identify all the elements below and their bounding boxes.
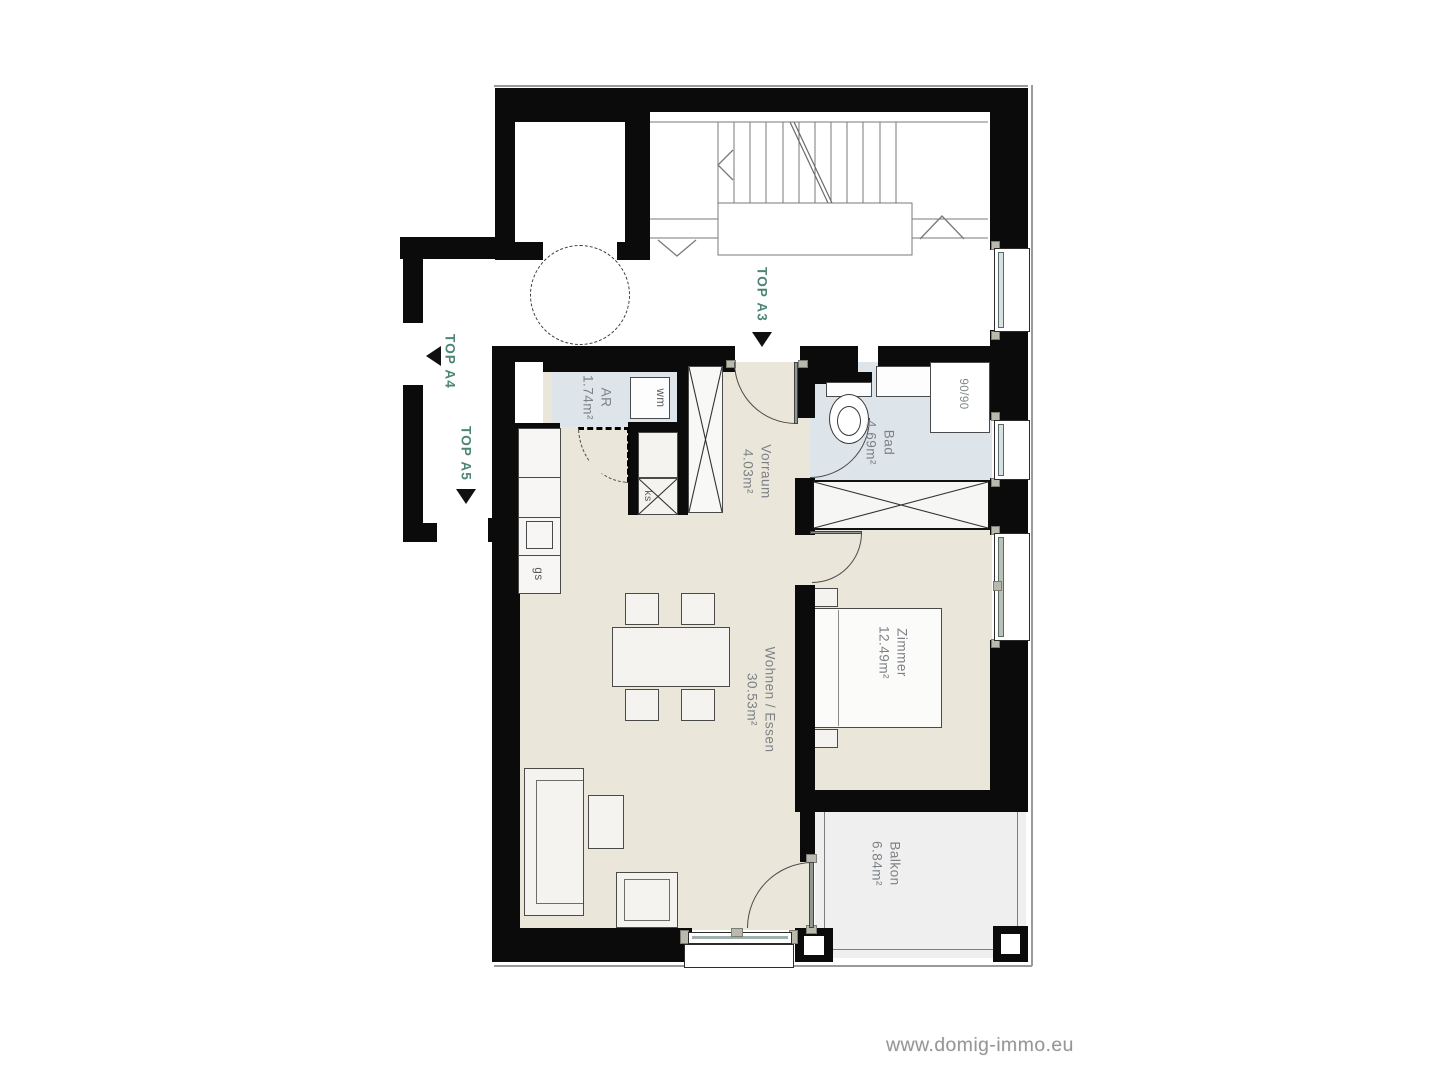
window-stairwell-glass bbox=[998, 252, 1004, 328]
website-text: www.domig-immo.eu bbox=[886, 1034, 1074, 1057]
dishwasher-label: gs bbox=[532, 544, 544, 604]
wall-left-main bbox=[492, 346, 520, 962]
unit-label-top-a5: TOP A5 bbox=[459, 414, 474, 494]
unit-label-top-a4: TOP A4 bbox=[443, 322, 458, 402]
wall-right-4 bbox=[990, 640, 1028, 812]
unit-label-top-a3: TOP A3 bbox=[755, 255, 770, 335]
counter-divider bbox=[519, 477, 560, 478]
balcony-post-right-inner bbox=[1001, 934, 1020, 954]
room-name: Balkon bbox=[886, 814, 904, 914]
wall-ar-right bbox=[677, 362, 688, 515]
wall-wohnen-zimmer bbox=[795, 585, 815, 812]
armchair-seat bbox=[624, 879, 670, 921]
balcony-post-left-inner bbox=[804, 936, 824, 955]
elevator-cab bbox=[515, 122, 625, 242]
balcony-railing-line bbox=[824, 798, 1018, 950]
room-name: Vorraum bbox=[757, 417, 775, 527]
window-bad-glass bbox=[998, 424, 1004, 476]
dining-chair bbox=[681, 689, 715, 721]
room-area: 1.74m² bbox=[579, 353, 597, 443]
counter-divider bbox=[519, 517, 560, 518]
room-label-ar: AR 1.74m² bbox=[579, 353, 614, 443]
sofa-seat-line bbox=[536, 780, 583, 904]
nightstand bbox=[812, 729, 838, 748]
bed-pillow-line bbox=[838, 610, 839, 726]
room-name: Bad bbox=[880, 398, 898, 488]
wall-vorraum-bad bbox=[795, 362, 815, 418]
room-area: 6.84m² bbox=[868, 814, 886, 914]
wall-balcony-top bbox=[795, 790, 1028, 812]
room-area: 4.69m² bbox=[862, 398, 880, 488]
washing-machine-label: wm bbox=[654, 368, 666, 428]
outline-top bbox=[494, 85, 1028, 87]
room-name: Zimmer bbox=[893, 603, 911, 703]
wall-bottom-main bbox=[492, 928, 692, 962]
wall-right-2 bbox=[990, 330, 1028, 420]
fridge-label: ks bbox=[642, 466, 654, 526]
room-label-bad: Bad 4.69m² bbox=[862, 398, 897, 488]
window-jamb bbox=[991, 331, 1000, 340]
dining-chair bbox=[681, 593, 715, 625]
room-name: Wohnen / Essen bbox=[761, 620, 779, 780]
coffee-table bbox=[588, 795, 624, 849]
room-label-zimmer: Zimmer 12.49m² bbox=[875, 603, 910, 703]
hall-wardrobe-x-icon bbox=[688, 366, 723, 513]
dining-chair bbox=[625, 689, 659, 721]
room-label-balkon: Balkon 6.84m² bbox=[868, 814, 903, 914]
outline-right bbox=[1031, 85, 1033, 966]
shower-size-label: 90/90 bbox=[957, 354, 969, 434]
shaft-niche bbox=[515, 362, 543, 423]
wing-wall-left-upper bbox=[403, 237, 423, 323]
unit-arrow-top-a3 bbox=[752, 332, 772, 347]
dining-chair bbox=[625, 593, 659, 625]
bedroom-wardrobe-x-icon bbox=[812, 480, 990, 530]
turning-circle bbox=[530, 245, 630, 345]
entrance-door-leaf bbox=[794, 362, 798, 424]
floor-plan-page: TOP A3 TOP A4 TOP A5 Vorraum 4.03m² AR 1… bbox=[0, 0, 1436, 1077]
door-jamb bbox=[798, 360, 808, 368]
room-area: 12.49m² bbox=[875, 603, 893, 703]
nightstand bbox=[812, 588, 838, 607]
staircase bbox=[640, 112, 992, 258]
room-name: AR bbox=[597, 353, 615, 443]
unit-arrow-top-a5 bbox=[456, 489, 476, 504]
unit-arrow-top-a4 bbox=[426, 346, 441, 366]
dining-table bbox=[612, 627, 730, 687]
wing-wall-left-lower bbox=[403, 385, 423, 523]
bathroom-sink bbox=[876, 366, 932, 397]
room-area: 30.53m² bbox=[743, 620, 761, 780]
window-handle bbox=[993, 581, 1002, 591]
window-handle bbox=[731, 928, 743, 937]
balcony-door-leaf bbox=[809, 862, 814, 928]
room-label-wohnen-essen: Wohnen / Essen 30.53m² bbox=[743, 620, 778, 780]
window-sill bbox=[684, 944, 794, 968]
room-label-vorraum: Vorraum 4.03m² bbox=[739, 417, 774, 527]
wing-wall-bottom bbox=[403, 523, 437, 542]
room-area: 4.03m² bbox=[739, 417, 757, 527]
wall-right-1 bbox=[990, 88, 1028, 250]
